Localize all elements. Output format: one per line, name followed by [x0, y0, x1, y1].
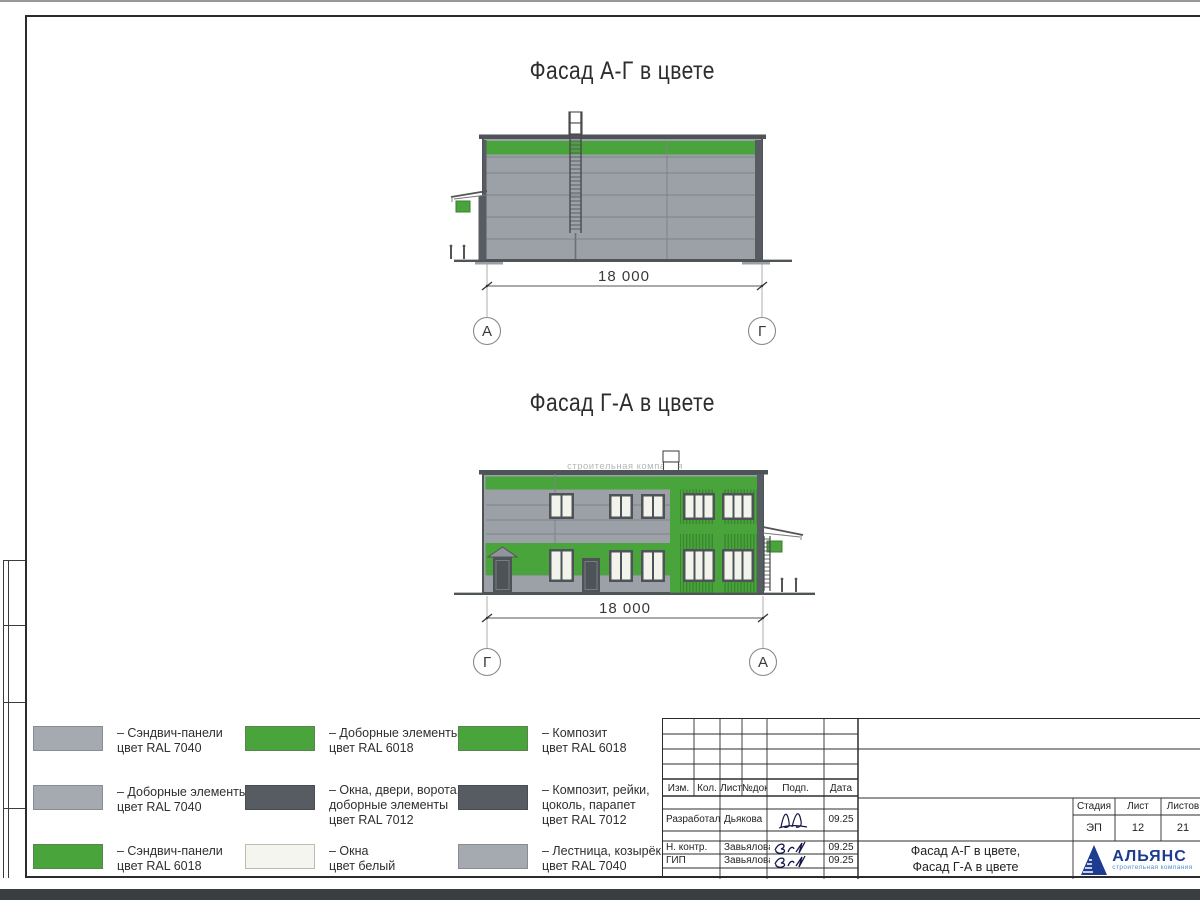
- tb-role: ГИП: [663, 854, 723, 868]
- window: [683, 549, 715, 582]
- parapet-cap: [479, 135, 766, 140]
- tb-stage-label: Стадия: [1073, 798, 1115, 815]
- axis-markers: А Г: [474, 318, 776, 345]
- facade-2-title: Фасад Г-А в цвете: [432, 389, 812, 418]
- facade-2-drawing: строительная компания: [430, 430, 830, 688]
- tb-col-list: Лист: [720, 781, 742, 796]
- tb-role: Н. контр.: [663, 841, 723, 854]
- dimension-label: 18 000: [598, 268, 650, 285]
- window: [609, 550, 633, 582]
- green-top-band: [486, 477, 761, 490]
- tb-col-podp: Подп.: [767, 781, 824, 796]
- tb-date: 09.25: [824, 854, 858, 868]
- building-elevation-ga: [454, 451, 815, 594]
- green-top-band: [486, 141, 760, 155]
- tb-stage-value: ЭП: [1073, 815, 1115, 841]
- dimension-label: 18 000: [599, 600, 651, 617]
- legend-swatch-ral6018: [245, 726, 315, 751]
- building-wall: [483, 138, 762, 260]
- logo-pyramid-icon: [1081, 845, 1107, 875]
- tb-name: Дьякова: [721, 809, 770, 831]
- signature-icon: [779, 814, 807, 828]
- sheet-margin-divider: [3, 808, 25, 809]
- legend-label: – Окна, двери, ворота,доборные элементыц…: [329, 783, 460, 828]
- entry-door: [582, 558, 600, 593]
- company-logo: АЛЬЯНС строительная компания: [1073, 841, 1200, 879]
- tb-sheets-value: 21: [1161, 815, 1200, 841]
- window: [609, 494, 633, 519]
- facade-1-drawing: 18 000 А Г: [430, 100, 810, 350]
- tb-date: 09.25: [824, 809, 858, 831]
- window: [722, 549, 754, 582]
- legend-label: – Сэндвич-панелицвет RAL 6018: [117, 844, 223, 874]
- legend-swatch-ral6018: [458, 726, 528, 751]
- screen-top-edge: [0, 0, 1200, 2]
- sheet-margin-line: [3, 560, 4, 878]
- tb-sheet-label: Лист: [1115, 798, 1161, 815]
- sheet-margin-divider: [3, 560, 25, 561]
- dimension-18000: 18 000: [482, 596, 768, 648]
- bollards-icon: [450, 245, 466, 259]
- axis-marker-left: А: [482, 323, 492, 340]
- sheet-frame-left: [25, 15, 27, 878]
- legend-swatch-white: [245, 844, 315, 869]
- signature-icon: [775, 842, 805, 853]
- tb-col-ndok: №док: [742, 781, 767, 796]
- tb-name: Завьялова: [721, 854, 770, 868]
- logo-subtitle: строительная компания: [1112, 864, 1192, 871]
- parapet-cap: [479, 470, 768, 475]
- corner-trim-left: [483, 140, 487, 260]
- facade-1-title: Фасад А-Г в цвете: [432, 57, 812, 86]
- axis-marker-left: Г: [483, 654, 491, 671]
- axis-marker-right: А: [758, 654, 768, 671]
- side-ladder-icon: [764, 536, 770, 591]
- legend-swatch-ral6018: [33, 844, 103, 869]
- logo-text: АЛЬЯНС: [1112, 849, 1192, 864]
- bollards-icon: [781, 578, 798, 592]
- window: [641, 550, 665, 582]
- signature-icon: [775, 856, 805, 867]
- tb-col-kol: Кол.: [694, 781, 720, 796]
- legend-label: – Окнацвет белый: [329, 844, 395, 874]
- tb-role: Разработал: [663, 809, 723, 831]
- screen-bottom-bar: [0, 889, 1200, 900]
- tb-doc-title: Фасад А-Г в цвете, Фасад Г-А в цвете: [858, 843, 1073, 875]
- tb-date: 09.25: [824, 841, 858, 854]
- window: [549, 493, 574, 519]
- window: [549, 549, 574, 582]
- sheet-margin-line: [8, 560, 9, 878]
- window: [722, 493, 754, 520]
- legend-swatch-ral7040: [33, 726, 103, 751]
- composite-sign: [456, 201, 470, 212]
- sheet-frame-top: [25, 15, 1200, 17]
- window: [641, 494, 665, 519]
- legend-swatch-ral7040: [458, 844, 528, 869]
- legend-swatch-ral7040: [33, 785, 103, 810]
- sheet-margin-divider: [3, 625, 25, 626]
- legend-label: – Композитцвет RAL 6018: [542, 726, 627, 756]
- tb-sheets-label: Листов: [1161, 798, 1200, 815]
- legend-label: – Лестница, козырёкцвет RAL 7040: [542, 844, 661, 874]
- dimension-18000: 18 000: [482, 264, 767, 317]
- tb-col-izm: Изм.: [663, 781, 694, 796]
- legend-label: – Сэндвич-панелицвет RAL 7040: [117, 726, 223, 756]
- axis-marker-right: Г: [758, 323, 766, 340]
- corner-trim-right: [755, 140, 762, 260]
- tb-sheet-value: 12: [1115, 815, 1161, 841]
- tb-col-data: Дата: [824, 781, 858, 796]
- sheet-margin-divider: [3, 702, 25, 703]
- roof-vent-icon: [663, 451, 679, 472]
- legend-swatch-ral7012: [458, 785, 528, 810]
- legend-label: – Композит, рейки,цоколь, парапетцвет RA…: [542, 783, 650, 828]
- legend-swatch-ral7012: [245, 785, 315, 810]
- legend-label: – Доборные элементыцвет RAL 7040: [117, 785, 248, 815]
- corner-trim-right: [757, 474, 763, 593]
- side-element: [479, 196, 484, 260]
- building-elevation-ag: [450, 112, 792, 265]
- legend-label: – Доборные элементыцвет RAL 6018: [329, 726, 460, 756]
- window: [683, 493, 715, 520]
- tb-name: Завьялова: [721, 841, 770, 854]
- axis-markers: Г А: [474, 649, 777, 676]
- title-block: Изм. Кол. Лист №док Подп. Дата Разработа…: [662, 718, 1200, 878]
